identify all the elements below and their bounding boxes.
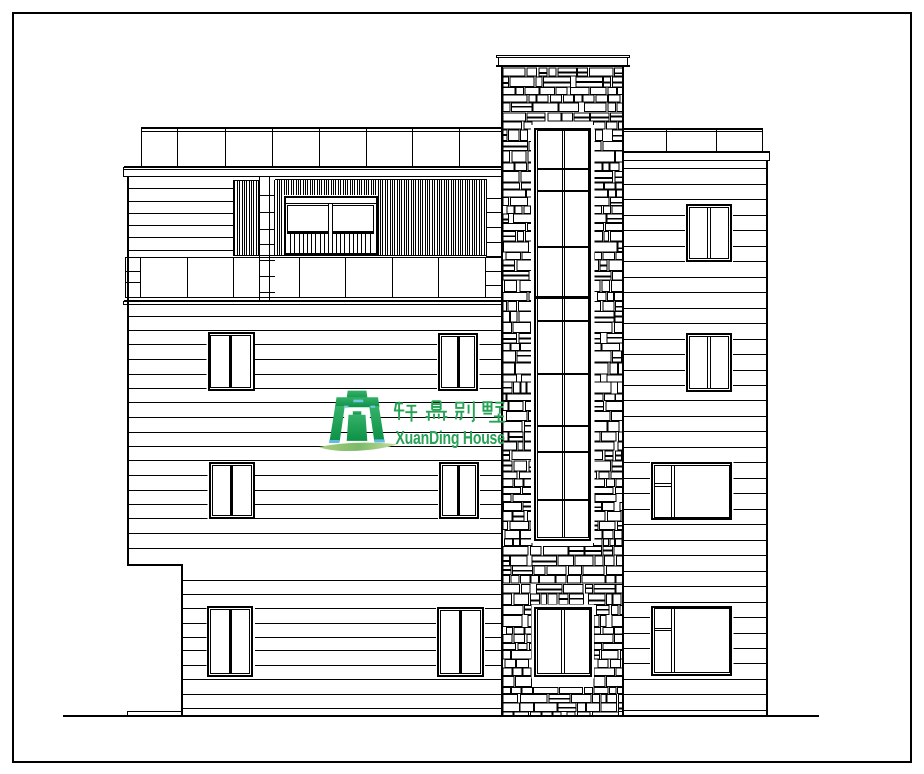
- svg-text:XuanDing House: XuanDing House: [396, 428, 505, 448]
